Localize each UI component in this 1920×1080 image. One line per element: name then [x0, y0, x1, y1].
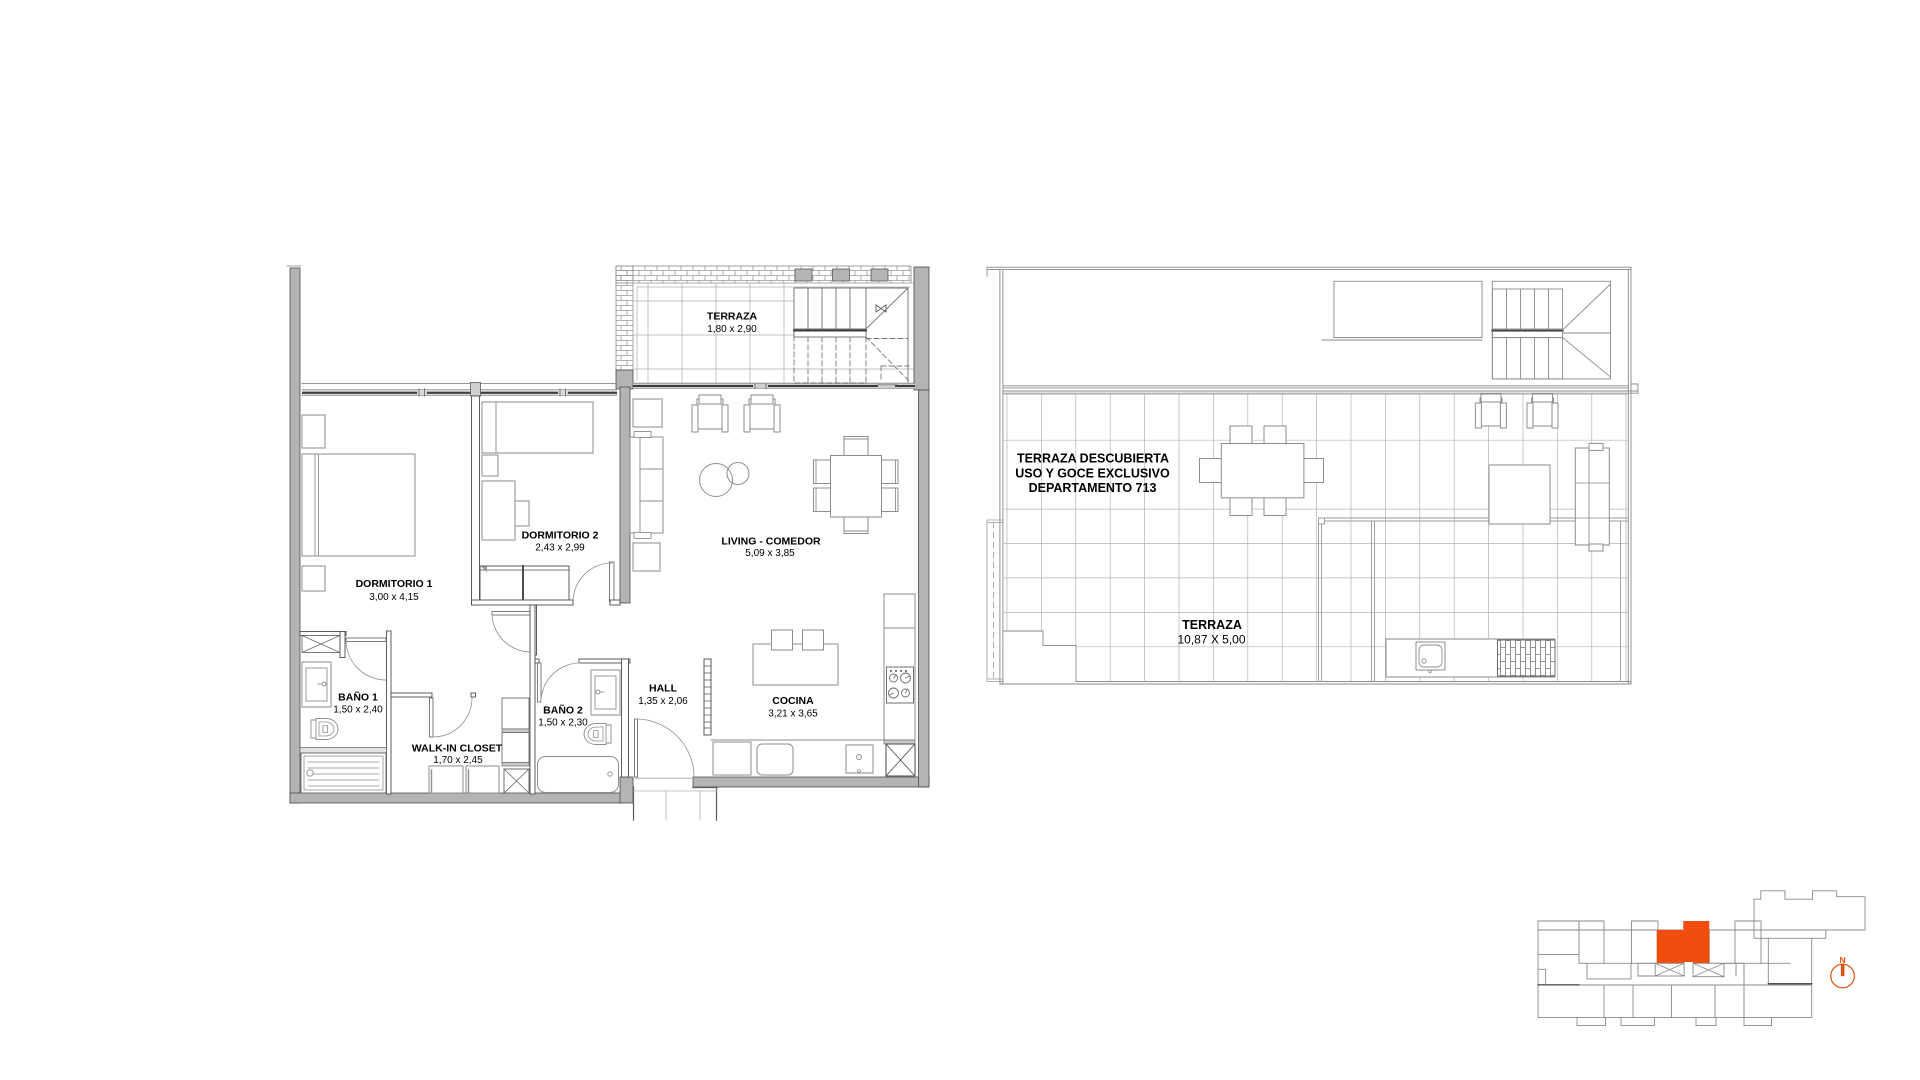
svg-text:1,80 x 2,90: 1,80 x 2,90: [707, 324, 757, 335]
svg-text:BAÑO 1: BAÑO 1: [338, 691, 378, 704]
svg-text:TERRAZA: TERRAZA: [707, 311, 758, 323]
svg-text:10,87 X 5,00: 10,87 X 5,00: [1177, 633, 1245, 647]
svg-text:DORMITORIO 2: DORMITORIO 2: [522, 530, 599, 542]
svg-text:N: N: [1840, 955, 1846, 965]
svg-text:1,35 x 2,06: 1,35 x 2,06: [638, 696, 688, 707]
svg-text:1,50 x 2,30: 1,50 x 2,30: [538, 718, 588, 729]
svg-text:HALL: HALL: [649, 683, 678, 695]
svg-text:3,21 x 3,65: 3,21 x 3,65: [768, 709, 818, 720]
svg-text:BAÑO 2: BAÑO 2: [543, 704, 583, 717]
svg-text:USO Y GOCE EXCLUSIVO: USO Y GOCE EXCLUSIVO: [1015, 467, 1170, 481]
svg-text:1,50 x 2,40: 1,50 x 2,40: [333, 705, 383, 716]
svg-text:1,70 x 2,45: 1,70 x 2,45: [433, 755, 483, 766]
svg-text:5,09 x 3,85: 5,09 x 3,85: [745, 548, 795, 559]
svg-text:3,00 x 4,15: 3,00 x 4,15: [369, 592, 419, 603]
svg-text:DEPARTAMENTO 713: DEPARTAMENTO 713: [1029, 481, 1157, 495]
svg-text:LIVING - COMEDOR: LIVING - COMEDOR: [721, 536, 821, 548]
svg-text:TERRAZA: TERRAZA: [1182, 618, 1242, 632]
svg-text:TERRAZA DESCUBIERTA: TERRAZA DESCUBIERTA: [1017, 452, 1169, 466]
svg-text:DORMITORIO 1: DORMITORIO 1: [356, 578, 433, 590]
svg-text:WALK-IN CLOSET: WALK-IN CLOSET: [412, 743, 503, 755]
svg-text:2,43 x 2,99: 2,43 x 2,99: [535, 543, 585, 554]
svg-text:COCINA: COCINA: [772, 695, 814, 707]
